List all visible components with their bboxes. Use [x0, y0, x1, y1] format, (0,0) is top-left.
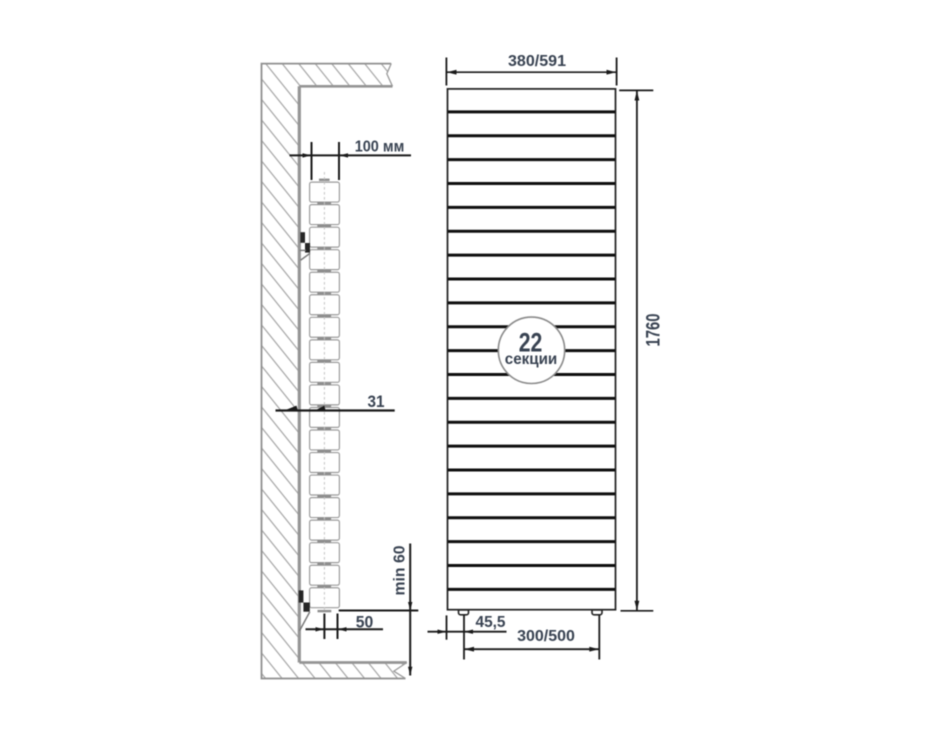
- svg-text:секции: секции: [505, 351, 558, 368]
- svg-text:31: 31: [368, 393, 385, 411]
- svg-text:1760: 1760: [643, 313, 665, 346]
- svg-text:300/500: 300/500: [517, 628, 575, 645]
- svg-text:100 мм: 100 мм: [355, 139, 405, 156]
- svg-text:50: 50: [356, 614, 374, 632]
- svg-text:min 60: min 60: [392, 545, 409, 595]
- svg-text:45,5: 45,5: [476, 614, 506, 631]
- svg-text:380/591: 380/591: [508, 53, 566, 70]
